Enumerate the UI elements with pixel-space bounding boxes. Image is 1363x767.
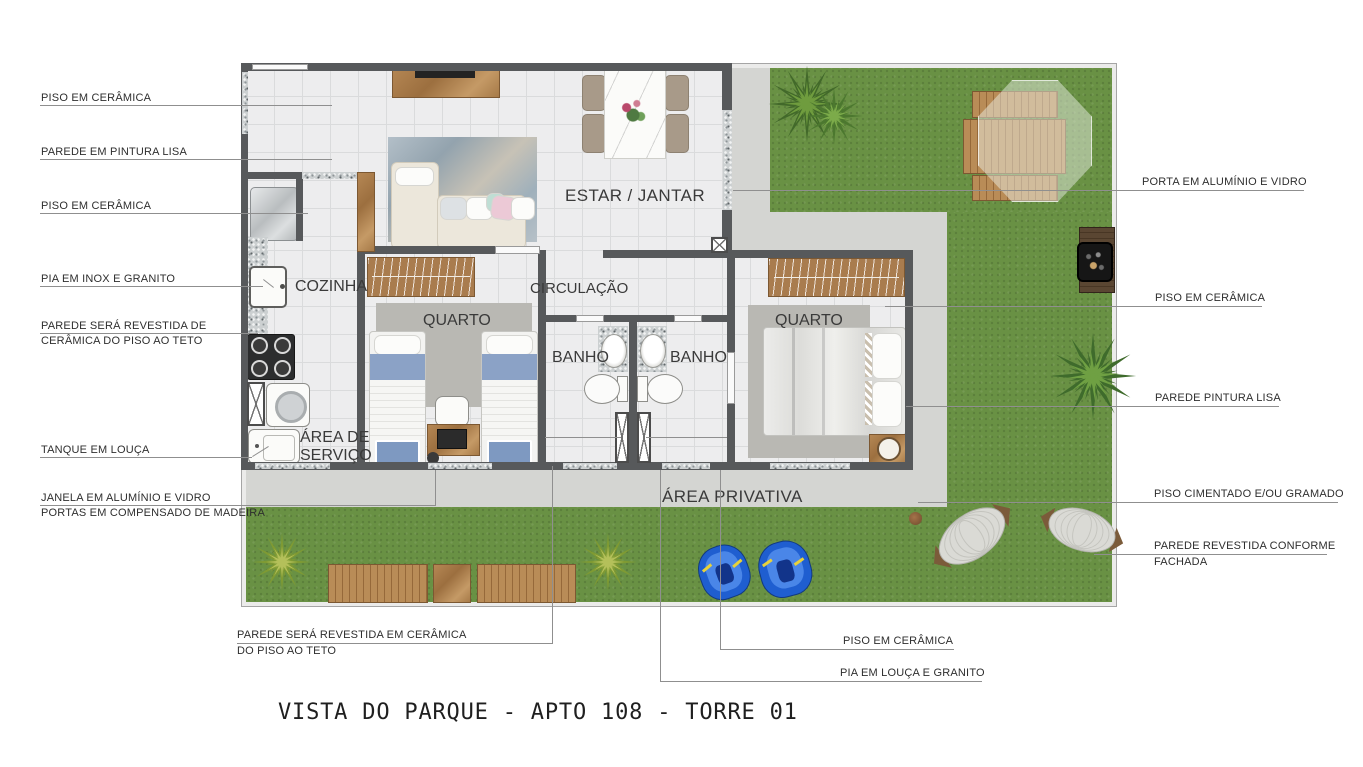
annotation-label: PIA EM INOX E GRANITO <box>41 273 175 286</box>
leader-line <box>40 105 332 106</box>
entry-door <box>711 237 728 253</box>
garden-plant <box>802 86 866 146</box>
wall-east-living-upper <box>722 63 732 110</box>
room-label-quarto1: QUARTO <box>423 312 491 330</box>
annotation-label: PIA EM LOUÇA E GRANITO <box>840 667 985 680</box>
annotation-label: JANELA EM ALUMÍNIO E VIDRO <box>41 492 211 505</box>
bathroom2-basin <box>640 334 666 368</box>
leader-line <box>40 505 436 506</box>
garden-lounger <box>477 564 576 603</box>
window-top <box>252 64 308 70</box>
leader-line <box>885 306 1262 307</box>
garden-side-table <box>433 564 471 603</box>
palm-plant <box>1048 328 1138 424</box>
leader-line <box>40 286 263 287</box>
annotation-label: PAREDE SERÁ REVESTIDA DE <box>41 320 206 333</box>
annotation-label: PAREDE EM PINTURA LISA <box>41 146 187 159</box>
pillow-trim <box>865 333 872 377</box>
leader-line-vertical <box>720 470 721 649</box>
single-bed-2 <box>481 331 538 470</box>
bbq-grill <box>1077 242 1113 282</box>
leader-line <box>906 406 1279 407</box>
sofa-pillow <box>511 197 535 220</box>
leader-line <box>237 643 553 644</box>
annotation-label: FACHADA <box>1154 556 1207 569</box>
single-bed-1 <box>369 331 426 470</box>
dining-chair <box>582 114 606 153</box>
laundry-tank <box>248 429 300 464</box>
annotation-label: PAREDE PINTURA LISA <box>1155 392 1281 405</box>
walkway-north-wing <box>732 212 947 250</box>
sofa-pillow <box>395 167 434 186</box>
service-door <box>247 382 265 426</box>
room-label-cozinha: COZINHA <box>295 278 367 296</box>
wardrobe-bedroom2 <box>768 258 905 297</box>
window-sill-bath1 <box>563 463 617 469</box>
wall-top <box>241 63 732 71</box>
leader-line <box>733 190 1304 191</box>
bedroom2-door <box>727 352 735 404</box>
annotation-label: PORTAS EM COMPENSADO DE MADEIRA <box>41 507 265 520</box>
bedroom1-door <box>495 246 540 254</box>
kitchen-pass-counter <box>302 172 357 179</box>
window-sill-bedroom1 <box>428 463 492 469</box>
tv <box>415 70 475 78</box>
wall-wing-top <box>603 250 913 258</box>
stove <box>247 334 295 380</box>
leader-line <box>918 502 1338 503</box>
leader-line <box>720 649 954 650</box>
page-title: VISTA DO PARQUE - APTO 108 - TORRE 01 <box>278 700 798 725</box>
wall-fridge-nook <box>241 172 302 179</box>
room-label-area-servico-2: SERVIÇO <box>300 447 372 465</box>
room-label-circulacao: CIRCULAÇÃO <box>530 280 628 297</box>
bathroom1-door <box>576 315 604 322</box>
hammock-post <box>909 512 922 525</box>
annotation-label: PAREDE SERÁ REVESTIDA EM CERÂMICA <box>237 629 467 642</box>
nightstand-lamp <box>877 437 901 461</box>
annotation-label: TANQUE EM LOUÇA <box>41 444 150 457</box>
wall-bedroom1-top <box>357 246 495 254</box>
leader-line <box>1094 554 1327 555</box>
leader-line <box>40 159 332 160</box>
bed-pillow <box>872 333 902 379</box>
walkway-south <box>246 470 947 507</box>
dining-chair <box>665 114 689 153</box>
dining-chair <box>665 75 689 111</box>
leader-line-vertical <box>660 470 661 681</box>
desk-chair <box>435 396 469 427</box>
leader-line <box>40 333 258 334</box>
washing-machine <box>266 383 310 427</box>
floor-plan-page: ESTAR / JANTAR COZINHA QUARTO CIRCULAÇÃO… <box>0 0 1363 767</box>
annotation-label: PAREDE REVESTIDA CONFORME <box>1154 540 1335 553</box>
room-label-area-servico-1: ÁREA DE <box>300 429 369 447</box>
annotation-label: DO PISO AO TETO <box>237 645 336 658</box>
yard-plant <box>252 528 312 596</box>
dining-chair <box>582 75 606 111</box>
wardrobe-bedroom1 <box>367 257 475 297</box>
room-label-banho1: BANHO <box>552 349 609 367</box>
leader-line <box>40 457 252 458</box>
annotation-label: PISO EM CERÂMICA <box>843 635 953 648</box>
room-label-quarto2: QUARTO <box>775 312 843 330</box>
wall-bathroom-divider <box>629 322 637 463</box>
toilet1 <box>584 374 620 404</box>
walkway-east-wing <box>913 250 947 507</box>
kitchen-faucet <box>280 284 285 289</box>
leader-line-vertical <box>435 470 436 506</box>
desk-computer <box>437 429 467 449</box>
annotation-label: PISO EM CERÂMICA <box>1155 292 1265 305</box>
leader-line <box>40 213 308 214</box>
refrigerator <box>250 187 302 241</box>
wall-wing-right <box>905 250 913 463</box>
garden-lounger <box>328 564 428 603</box>
sofa-pillow <box>440 197 467 220</box>
bed-pillow <box>872 381 902 427</box>
glass-door-east <box>723 110 732 210</box>
kitchen-divider-cabinet <box>357 172 375 252</box>
shower2-partition <box>646 437 727 438</box>
annotation-label: PISO EM CERÂMICA <box>41 200 151 213</box>
room-label-area-privativa: ÁREA PRIVATIVA <box>662 487 803 507</box>
toilet2 <box>647 374 683 404</box>
window-left <box>242 72 248 134</box>
annotation-label: PISO CIMENTADO E/OU GRAMADO <box>1154 488 1344 501</box>
room-label-banho2: BANHO <box>670 349 727 367</box>
leader-line <box>660 681 982 682</box>
annotation-label: PISO EM CERÂMICA <box>41 92 151 105</box>
annotation-label: PORTA EM ALUMÍNIO E VIDRO <box>1142 176 1307 189</box>
leader-line-vertical <box>552 466 553 643</box>
wall-fridge-nook-side <box>296 179 303 241</box>
window-sill-bedroom2 <box>770 463 850 469</box>
window-sill-bath2 <box>662 463 710 469</box>
room-label-estar-jantar: ESTAR / JANTAR <box>565 186 705 206</box>
annotation-label: CERÂMICA DO PISO AO TETO <box>41 335 203 348</box>
yard-plant <box>578 528 638 596</box>
pillow-trim <box>865 381 872 425</box>
table-centerpiece-flowers <box>617 94 649 128</box>
shower1-partition <box>545 437 621 438</box>
bathroom2-door <box>674 315 702 322</box>
